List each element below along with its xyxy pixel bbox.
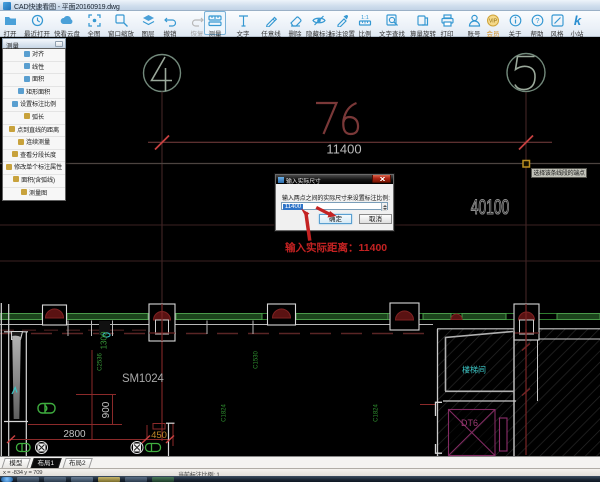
svg-text:输入实际距离：11400: 输入实际距离：11400 [285, 241, 387, 254]
